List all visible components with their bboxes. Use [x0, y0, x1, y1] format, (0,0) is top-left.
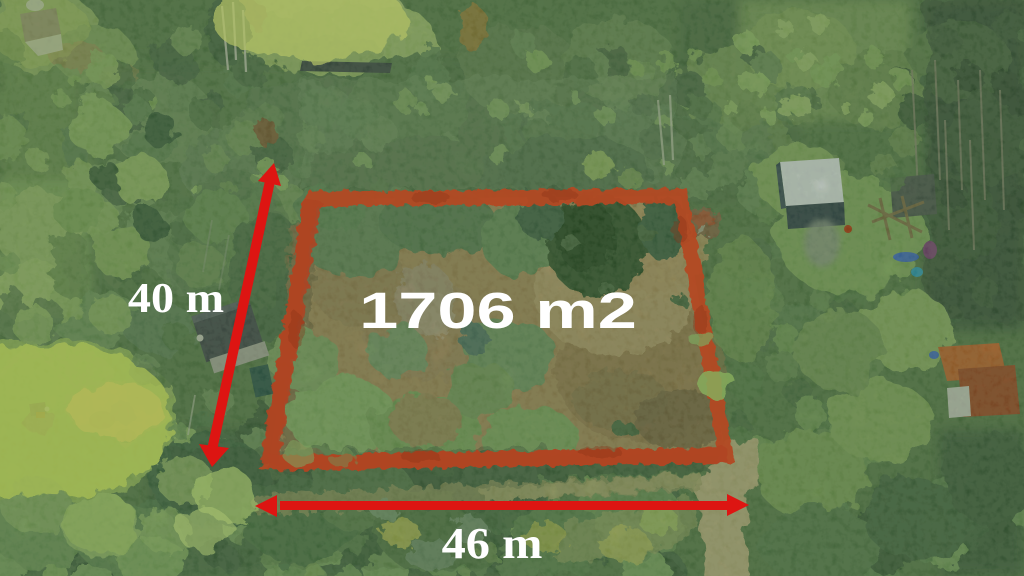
svg-text:40 m: 40 m [128, 275, 224, 322]
svg-text:46 m: 46 m [442, 520, 543, 569]
svg-text:1706 m2: 1706 m2 [359, 282, 637, 339]
